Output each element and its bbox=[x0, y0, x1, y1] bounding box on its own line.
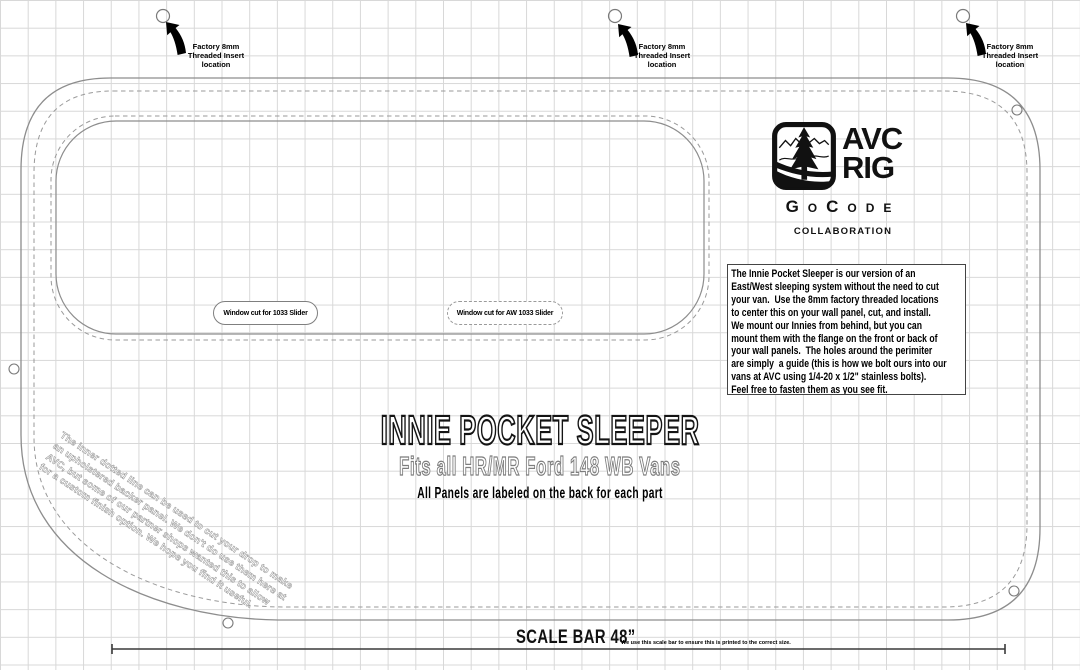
avc-badge-icon bbox=[772, 122, 836, 190]
info-box: The Innie Pocket Sleeper is our version … bbox=[727, 264, 966, 395]
scale-bar-note: We use this scale bar to ensure this is … bbox=[621, 640, 791, 646]
info-text: The Innie Pocket Sleeper is our version … bbox=[728, 265, 966, 395]
window-cut-label-aw-1033: Window cut for AW 1033 Slider bbox=[447, 301, 563, 325]
page-title: INNIE POCKET SLEEPER bbox=[381, 408, 700, 452]
window-panel-dashed-line bbox=[51, 116, 709, 340]
scale-bar-label: SCALE BAR 48” bbox=[516, 627, 636, 649]
brand-gocode: GoCode bbox=[772, 197, 914, 217]
factory-insert-label: Factory 8mm Threaded Insert location bbox=[176, 42, 256, 69]
window-cut-label-1033: Window cut for 1033 Slider bbox=[213, 301, 318, 325]
bolt-hole-circle bbox=[1009, 586, 1019, 596]
title-block: INNIE POCKET SLEEPER Fits all HR/MR Ford… bbox=[0, 408, 1080, 503]
template-page: Factory 8mm Threaded Insert location Fac… bbox=[0, 0, 1080, 670]
logo-block: AVC RIG GoCode COLLABORATION bbox=[772, 122, 914, 237]
brand-avc: AVC bbox=[842, 124, 902, 153]
bolt-hole-circle bbox=[1012, 105, 1022, 115]
bolt-hole-circle bbox=[609, 10, 622, 23]
brand-rig: RIG bbox=[842, 153, 902, 182]
panels-note: All Panels are labeled on the back for e… bbox=[417, 486, 663, 502]
bolt-hole-circle bbox=[9, 364, 19, 374]
collaboration-label: COLLABORATION bbox=[772, 226, 914, 237]
factory-insert-label: Factory 8mm Threaded Insert location bbox=[622, 42, 702, 69]
bolt-hole-circle bbox=[157, 10, 170, 23]
factory-insert-label: Factory 8mm Threaded Insert location bbox=[970, 42, 1050, 69]
bolt-hole-circle bbox=[223, 618, 233, 628]
window-panel-outline bbox=[56, 121, 704, 334]
bolt-hole-circle bbox=[957, 10, 970, 23]
page-subtitle: Fits all HR/MR Ford 148 WB Vans bbox=[399, 453, 681, 480]
